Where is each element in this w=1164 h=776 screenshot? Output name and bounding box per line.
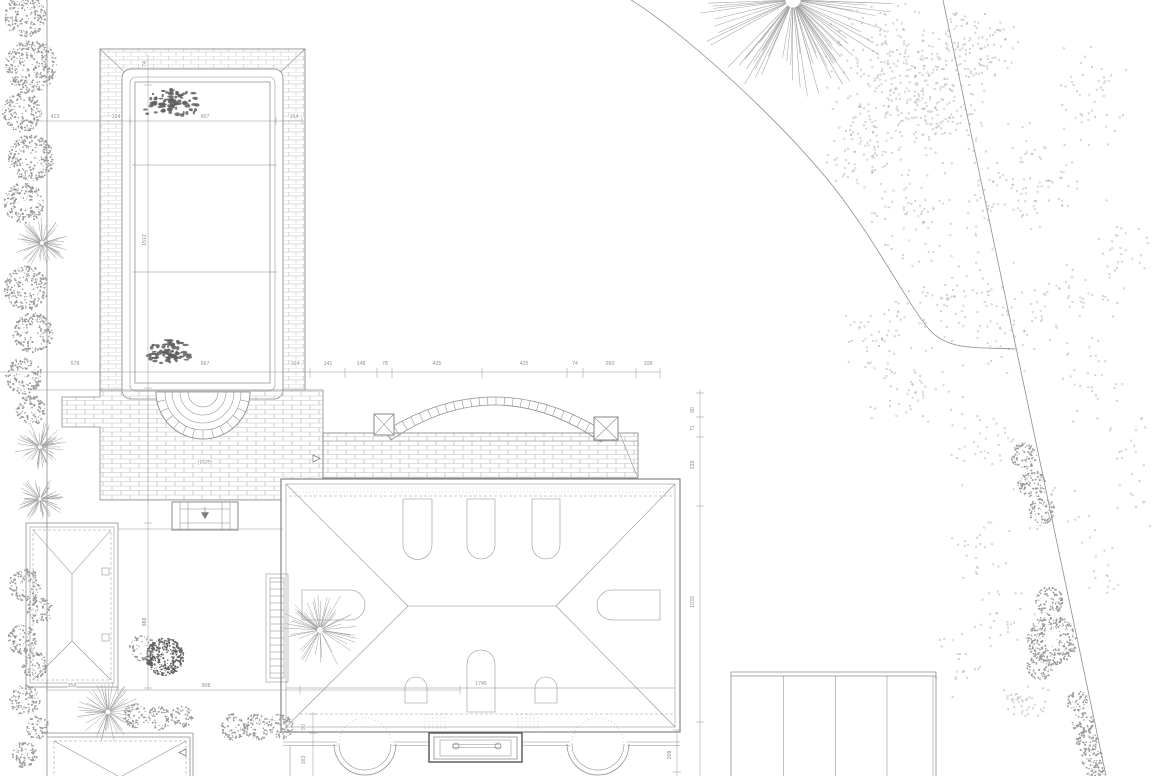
dimension-label: 667 bbox=[201, 361, 210, 367]
deck bbox=[731, 672, 936, 776]
dimension-label: 1745 bbox=[475, 681, 487, 687]
dimension-label: 108 bbox=[644, 361, 653, 367]
site-plan-drawing: 413 164 607 164 74 1512 578 667 164 141 … bbox=[0, 0, 1164, 776]
shrub-icon bbox=[9, 684, 41, 714]
shrub-icon bbox=[5, 357, 42, 394]
shrub-icon bbox=[1076, 730, 1098, 751]
dimension-label: 78 bbox=[382, 361, 388, 367]
dimension-label: 339 bbox=[690, 461, 696, 470]
wall-brickwork bbox=[323, 433, 638, 478]
tree-icon bbox=[16, 218, 66, 265]
pool-water bbox=[135, 82, 270, 383]
tree-icon bbox=[19, 480, 64, 519]
shrub-icon bbox=[221, 713, 247, 741]
house-outline bbox=[281, 479, 680, 732]
porch-steps bbox=[429, 733, 522, 762]
dimension-label: 148 bbox=[357, 361, 366, 367]
shrub-icon bbox=[1035, 587, 1063, 616]
wall-post-left bbox=[374, 414, 394, 435]
shrub-icon bbox=[1072, 712, 1095, 734]
dimension-label: 1512 bbox=[142, 234, 148, 246]
dimension-label: 164 bbox=[291, 361, 300, 367]
shrub-icon bbox=[243, 714, 270, 741]
shrub-icon bbox=[9, 568, 41, 601]
shrub-icon bbox=[16, 395, 46, 425]
house bbox=[281, 479, 680, 776]
shrub-icon bbox=[148, 706, 171, 731]
shrub-icon bbox=[12, 742, 38, 768]
dimension-label: 74 bbox=[572, 361, 578, 367]
driveway-curve bbox=[628, 0, 1016, 349]
shrub-icon bbox=[2, 91, 43, 132]
dimension-label: 425 bbox=[433, 361, 442, 367]
dimension-label: 578 bbox=[71, 361, 80, 367]
shrub-icon bbox=[4, 265, 48, 310]
dimension-label: 208 bbox=[667, 751, 673, 760]
dimension-label: 164 bbox=[290, 114, 299, 120]
shrub-icon bbox=[4, 183, 45, 224]
shrub-icon bbox=[1011, 443, 1037, 470]
property-line-diagonal bbox=[943, 0, 1106, 776]
tree-icon bbox=[15, 423, 66, 470]
dimension-label: 358 bbox=[68, 683, 77, 689]
dimension-label: (1625) bbox=[198, 460, 213, 466]
dimension-label: 141 bbox=[324, 361, 333, 367]
dimension-label: 90 bbox=[690, 407, 696, 413]
shrub-icon bbox=[8, 625, 37, 655]
shrub-icon bbox=[1026, 654, 1052, 681]
shrub-icon bbox=[1017, 470, 1046, 498]
dimension-label: 413 bbox=[51, 114, 60, 120]
arch-voussoirs bbox=[394, 397, 599, 437]
dimension-label: 164 bbox=[112, 114, 121, 120]
arrow-left-icon bbox=[179, 749, 186, 756]
dimension-label: 425 bbox=[520, 361, 529, 367]
dimension-label: 1033 bbox=[690, 596, 696, 608]
outbuilding bbox=[47, 733, 193, 776]
shrub-icon bbox=[5, 41, 57, 93]
dimension-label: 908 bbox=[202, 683, 211, 689]
shrub-icon bbox=[1026, 615, 1076, 666]
pool-area bbox=[100, 49, 305, 439]
garage bbox=[26, 523, 118, 687]
dimension-label: 607 bbox=[201, 114, 210, 120]
shrub-icon bbox=[146, 638, 185, 677]
dimension-label: 988 bbox=[142, 618, 148, 627]
dimension-label: 71 bbox=[690, 425, 696, 431]
shrub-icon bbox=[1067, 691, 1088, 712]
terrace-steps bbox=[172, 502, 238, 530]
garden-wall bbox=[313, 397, 638, 478]
dimension-label: 163 bbox=[301, 756, 307, 765]
dimension-label: 260 bbox=[606, 361, 615, 367]
shrub-icon bbox=[123, 703, 147, 728]
groundcover-dots bbox=[825, 0, 1150, 716]
wall-post-right bbox=[594, 417, 618, 440]
shrub-icon bbox=[27, 597, 53, 623]
shrub-icon bbox=[1029, 498, 1055, 524]
tree-icon bbox=[698, 0, 892, 96]
dimension-label: 74 bbox=[142, 61, 148, 67]
shrub-icon bbox=[26, 716, 49, 740]
shrub-icon bbox=[5, 0, 47, 37]
shrub-icon bbox=[170, 706, 193, 728]
shrub-icon bbox=[1081, 748, 1103, 769]
shrub-icon bbox=[21, 652, 47, 679]
dimension-label: 90 bbox=[301, 724, 307, 730]
